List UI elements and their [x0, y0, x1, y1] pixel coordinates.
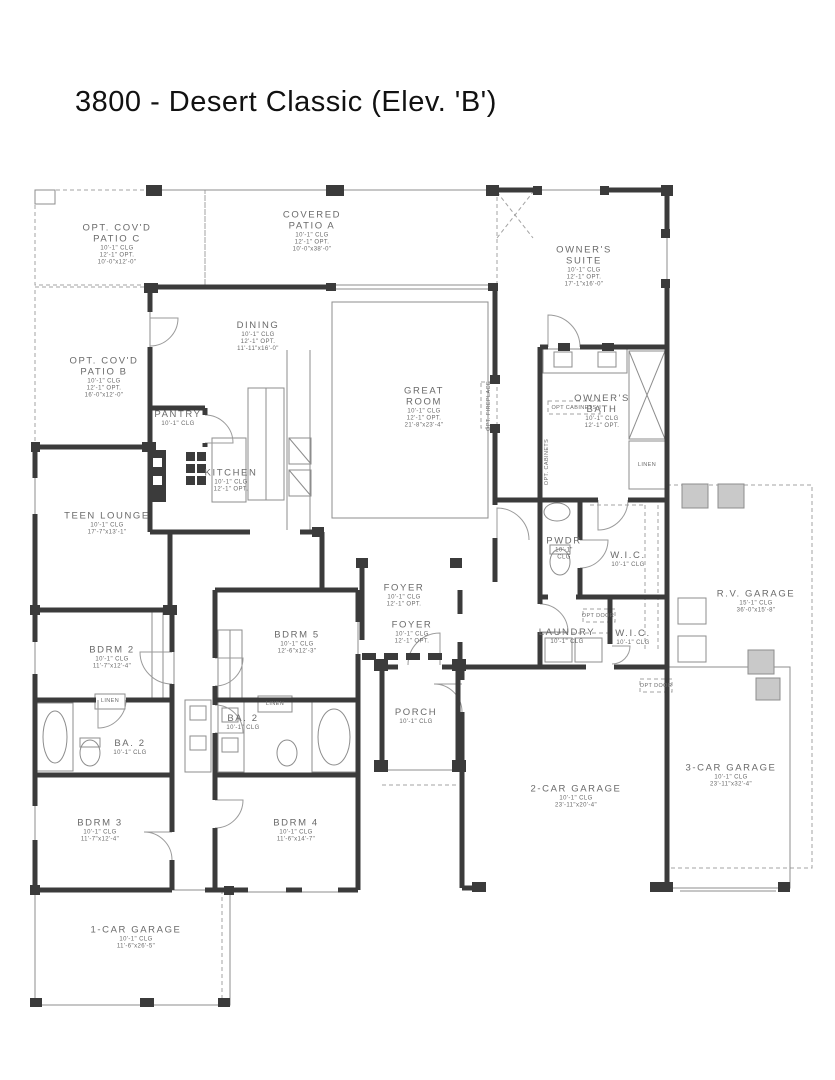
- walls: [35, 190, 667, 890]
- floor-plan-drawing: [0, 0, 835, 1080]
- floor-plan-page: 3800 - Desert Classic (Elev. 'B'): [0, 0, 835, 1080]
- posts-and-blocks: [30, 185, 790, 1007]
- thin-lines: [35, 190, 790, 1005]
